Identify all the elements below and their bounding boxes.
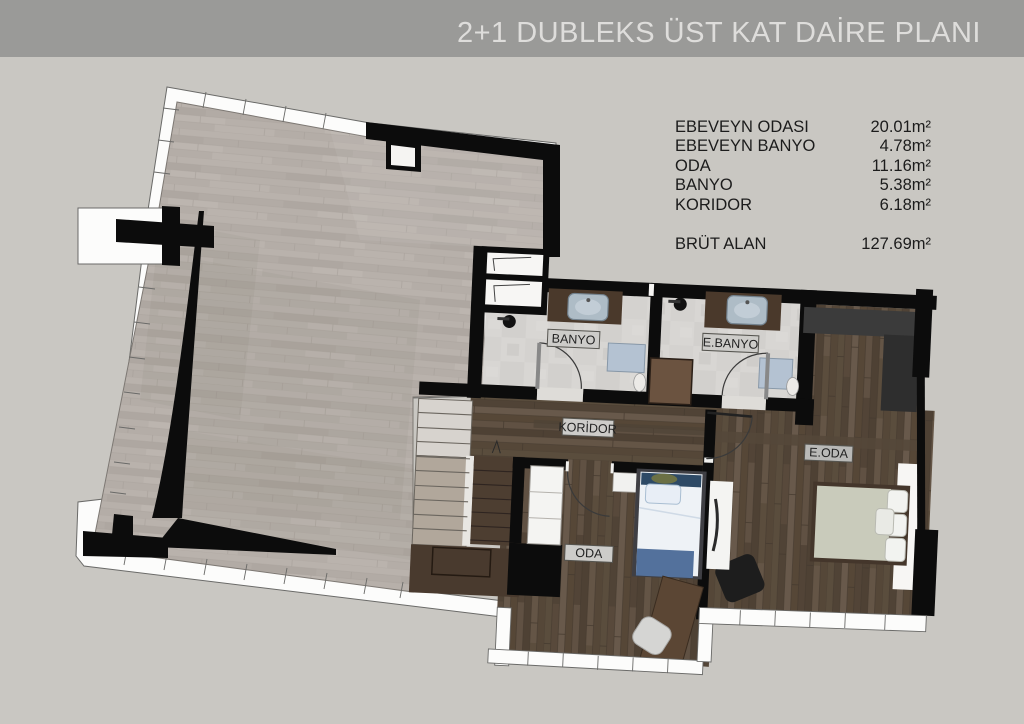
svg-text:KORİDOR: KORİDOR — [558, 420, 617, 437]
svg-text:4.78m²: 4.78m² — [880, 137, 932, 155]
svg-text:6.18m²: 6.18m² — [880, 196, 932, 214]
svg-text:E.ODA: E.ODA — [809, 445, 849, 461]
svg-text:ODA: ODA — [575, 546, 603, 561]
svg-text:EBEVEYN ODASI: EBEVEYN ODASI — [675, 118, 809, 136]
svg-text:BANYO: BANYO — [675, 176, 733, 194]
svg-text:BRÜT ALAN: BRÜT ALAN — [675, 235, 766, 253]
svg-text:11.16m²: 11.16m² — [872, 157, 932, 175]
svg-text:5.38m²: 5.38m² — [880, 176, 932, 194]
svg-text:E.BANYO: E.BANYO — [702, 335, 758, 352]
svg-text:2+1 DUBLEKS ÜST KAT DAİRE PLAN: 2+1 DUBLEKS ÜST KAT DAİRE PLANI — [457, 16, 981, 49]
svg-text:EBEVEYN BANYO: EBEVEYN BANYO — [675, 137, 815, 155]
svg-text:127.69m²: 127.69m² — [861, 235, 931, 253]
svg-text:20.01m²: 20.01m² — [870, 118, 931, 136]
svg-text:KORIDOR: KORIDOR — [675, 196, 752, 214]
svg-text:BANYO: BANYO — [551, 331, 596, 347]
svg-text:ODA: ODA — [675, 157, 711, 175]
